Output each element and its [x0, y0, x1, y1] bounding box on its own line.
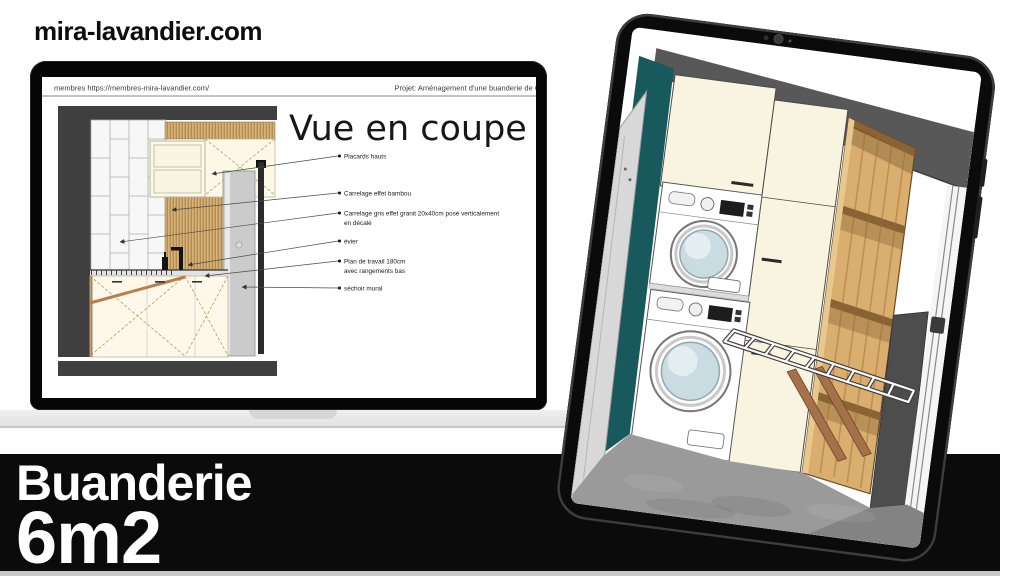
- drawing-counter: [90, 270, 228, 276]
- annotation-carrelage-gris: Carrelage gris effet granit 20x40cm posé…: [344, 210, 501, 227]
- camera-lens-icon: [773, 33, 784, 44]
- camera-dot-icon: [763, 35, 769, 41]
- annotation-sechoir-mural: séchoir mural: [344, 285, 382, 292]
- laptop-notch: [249, 410, 337, 419]
- annotation-placards-hauts: Placards hauts: [344, 153, 386, 160]
- tablet: [553, 10, 998, 565]
- annotation-bullets: [338, 155, 341, 290]
- render-dryer-unit: [650, 182, 762, 296]
- laptop-screen: membres https://membres-mira-lavandier.c…: [42, 77, 536, 398]
- camera-sensor-icon: [788, 39, 791, 42]
- annotation-plan-de-travail: Plan de travail 180cm avec rangements ba…: [344, 258, 407, 275]
- render-upper-cabinet: [660, 75, 776, 199]
- render-washer-unit: [630, 289, 750, 461]
- drawing-bamboo-panel-middle: [165, 195, 225, 270]
- drawing-ceiling: [58, 106, 277, 120]
- drawing-left-wall: [58, 120, 91, 357]
- tablet-screen: [570, 27, 982, 549]
- site-url-text: mira-lavandier.com: [34, 16, 262, 47]
- thumbnail-page: mira-lavandier.com Buanderie 6m2 membres…: [0, 0, 1024, 576]
- annotation-labels: Placards hauts Carrelage effet bambou Ca…: [344, 153, 501, 292]
- browser-header-right: Projet: Aménagement d'une buanderie de 6: [395, 84, 536, 93]
- drawing-base-cabinets: [90, 276, 228, 357]
- section-drawing-slide: membres https://membres-mira-lavandier.c…: [42, 77, 536, 398]
- tablet-volume-button: [972, 196, 982, 238]
- drawing-floor: [58, 361, 277, 376]
- tablet-power-button: [979, 159, 988, 187]
- browser-header: membres https://membres-mira-lavandier.c…: [42, 84, 536, 97]
- slide-title: Vue en coupe: [289, 109, 527, 149]
- annotation-carrelage-bambou: Carrelage effet bambou: [344, 190, 411, 197]
- laundry-3d-render: [570, 27, 982, 549]
- drawing-bamboo-panel-top: [165, 122, 275, 139]
- browser-header-left: membres https://membres-mira-lavandier.c…: [54, 84, 210, 93]
- banner-title-line2: 6m2: [16, 501, 161, 575]
- annotation-evier: évier: [344, 238, 359, 245]
